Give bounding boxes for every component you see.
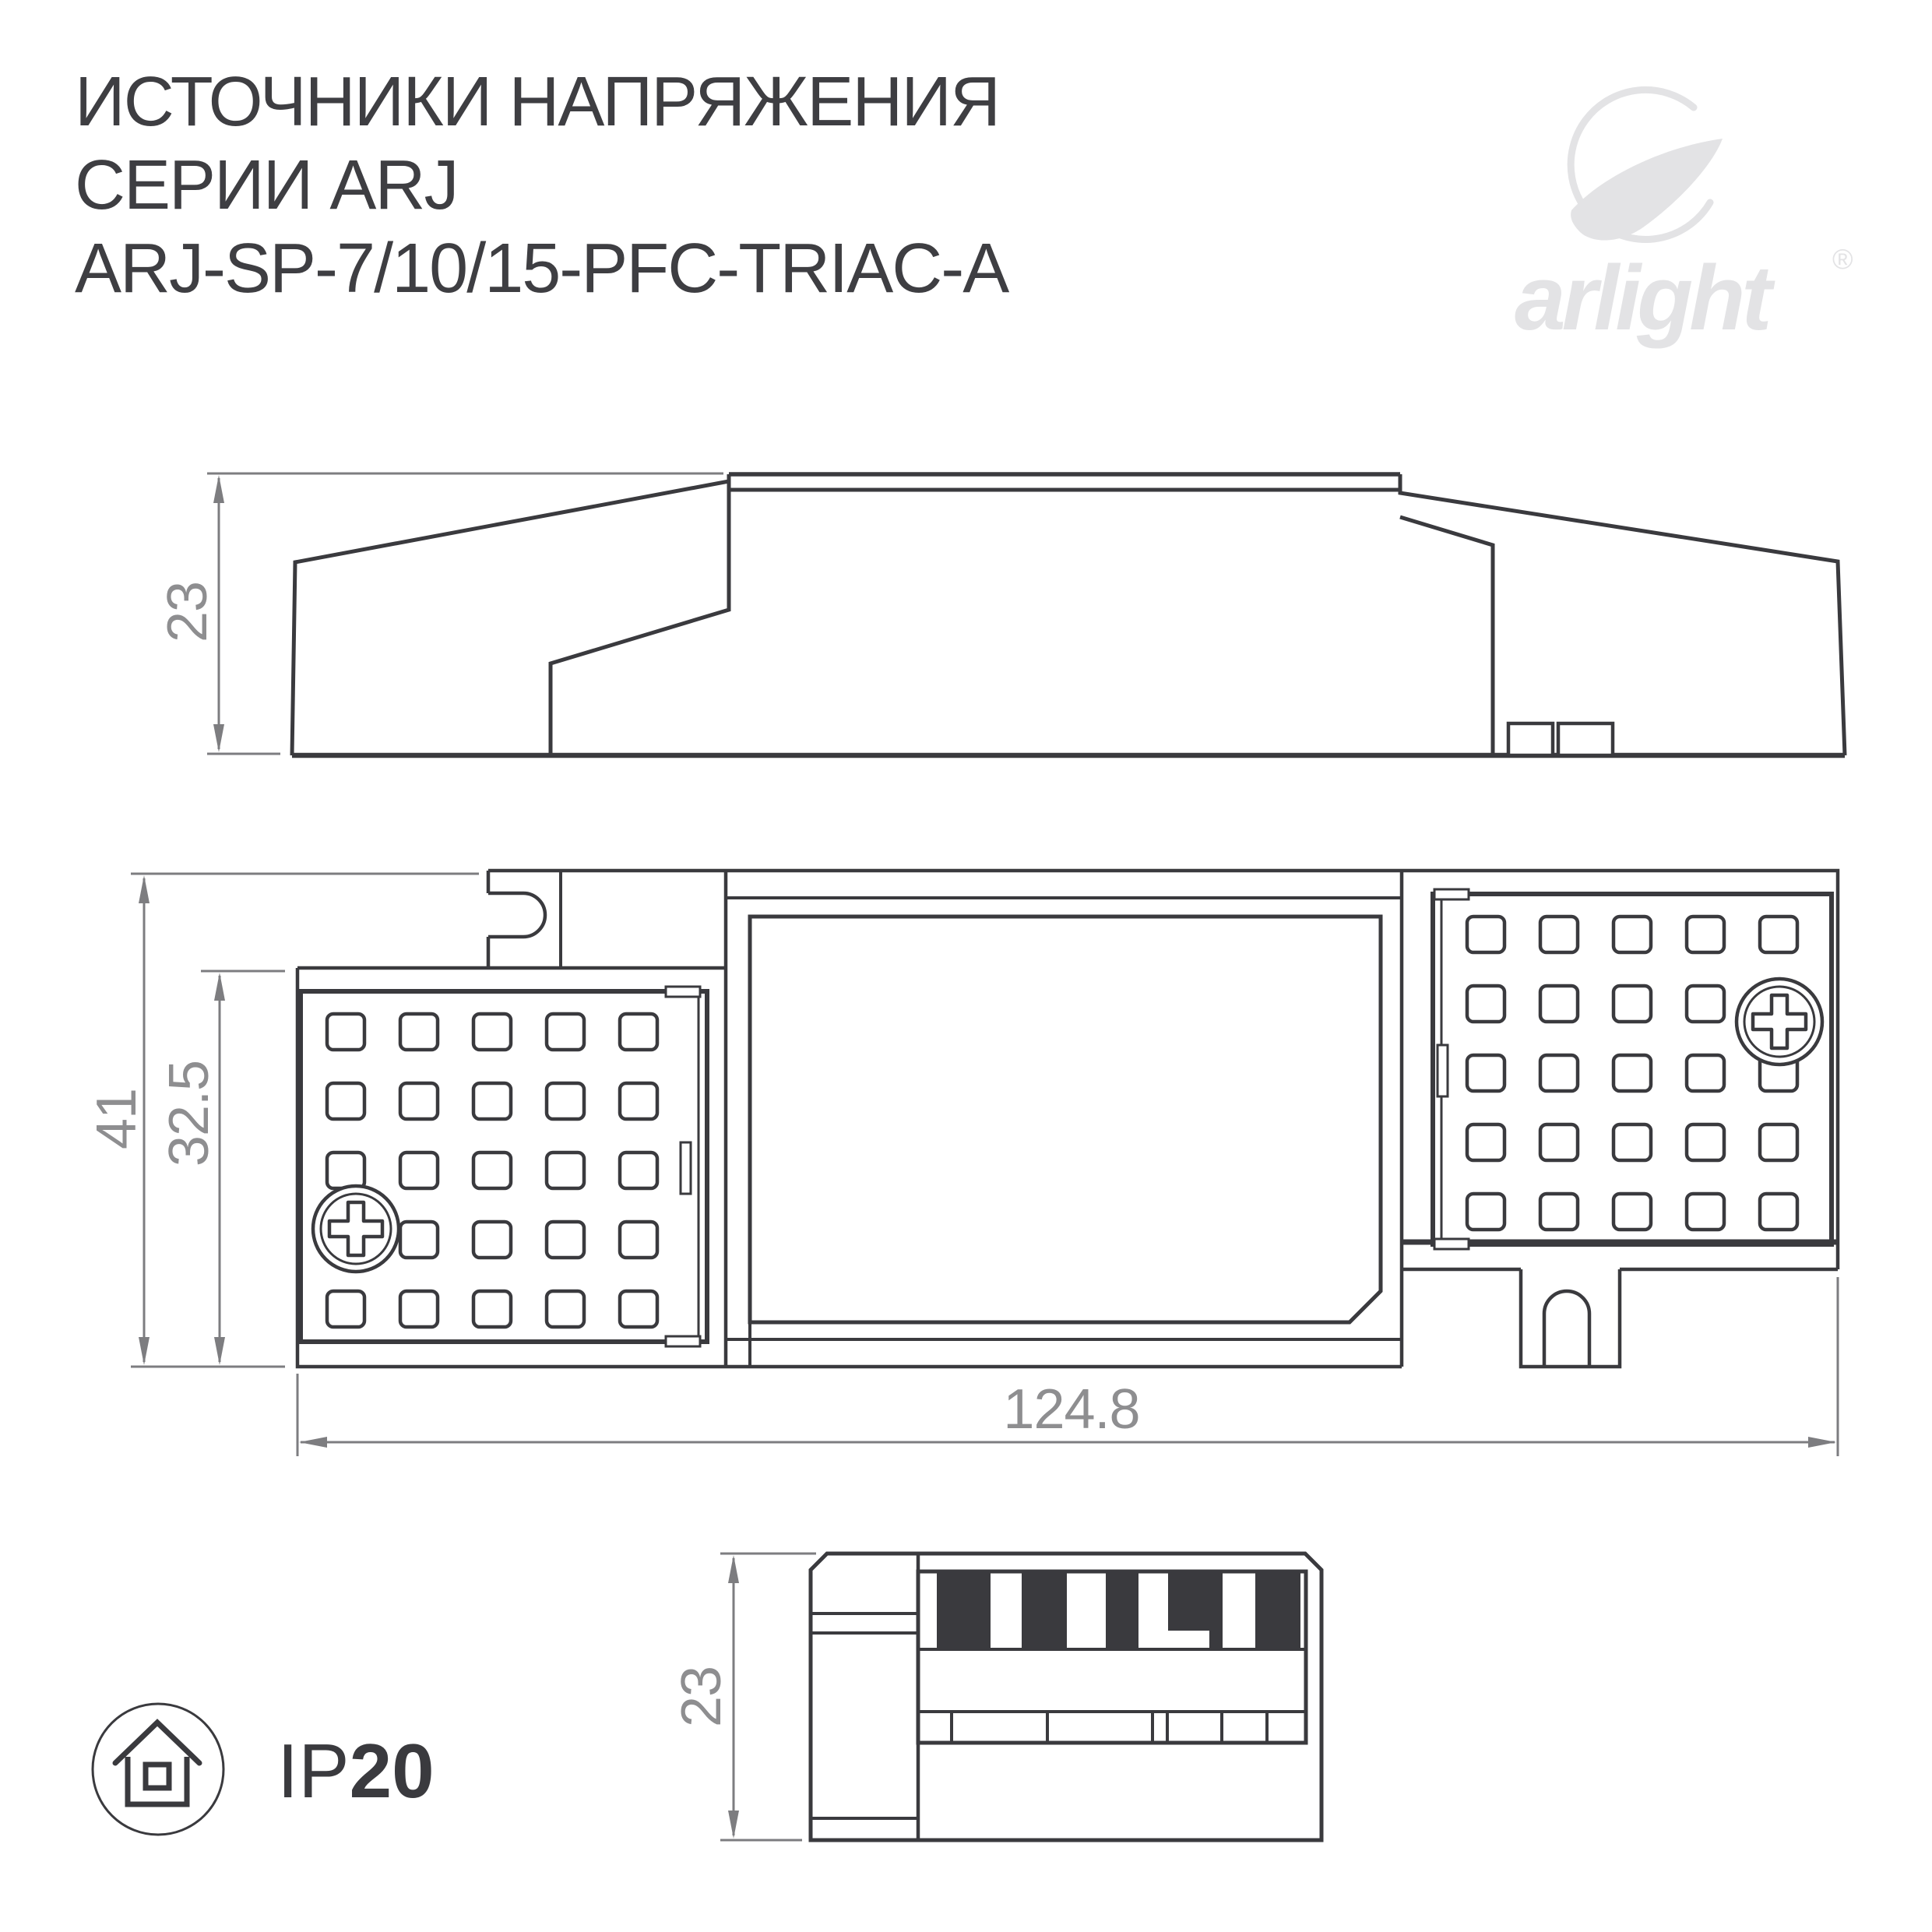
left-screw-icon <box>313 1186 399 1272</box>
ip-rating-value: 20 <box>350 1728 435 1814</box>
drawing-sheet: ИСТОЧНИКИ НАПРЯЖЕНИЯ СЕРИИ ARJ ARJ-SP-7/… <box>0 0 1932 1932</box>
top-view-overall-dim: 41 <box>85 1089 149 1149</box>
left-vent-holes <box>327 1014 657 1327</box>
terminal-pins <box>937 1571 1300 1651</box>
top-view <box>131 871 1838 1456</box>
top-view-length-dim: 124.8 <box>1003 1378 1139 1441</box>
right-vent-holes <box>1467 917 1797 1230</box>
dimension-drawing <box>0 0 1932 1932</box>
left-vent-panel <box>301 987 707 1346</box>
ip20-house-icon <box>93 1704 223 1835</box>
ip-rating-prefix: IP <box>277 1728 350 1814</box>
top-view-panel-dim: 32.5 <box>157 1061 221 1167</box>
side-view <box>207 473 1845 755</box>
end-view-height-dim: 23 <box>670 1666 734 1727</box>
end-view <box>720 1554 1321 1840</box>
right-screw-icon <box>1737 979 1822 1065</box>
ip-rating: IP20 <box>277 1730 435 1811</box>
right-vent-panel <box>1433 889 1832 1249</box>
side-view-height-dim: 23 <box>156 582 220 642</box>
